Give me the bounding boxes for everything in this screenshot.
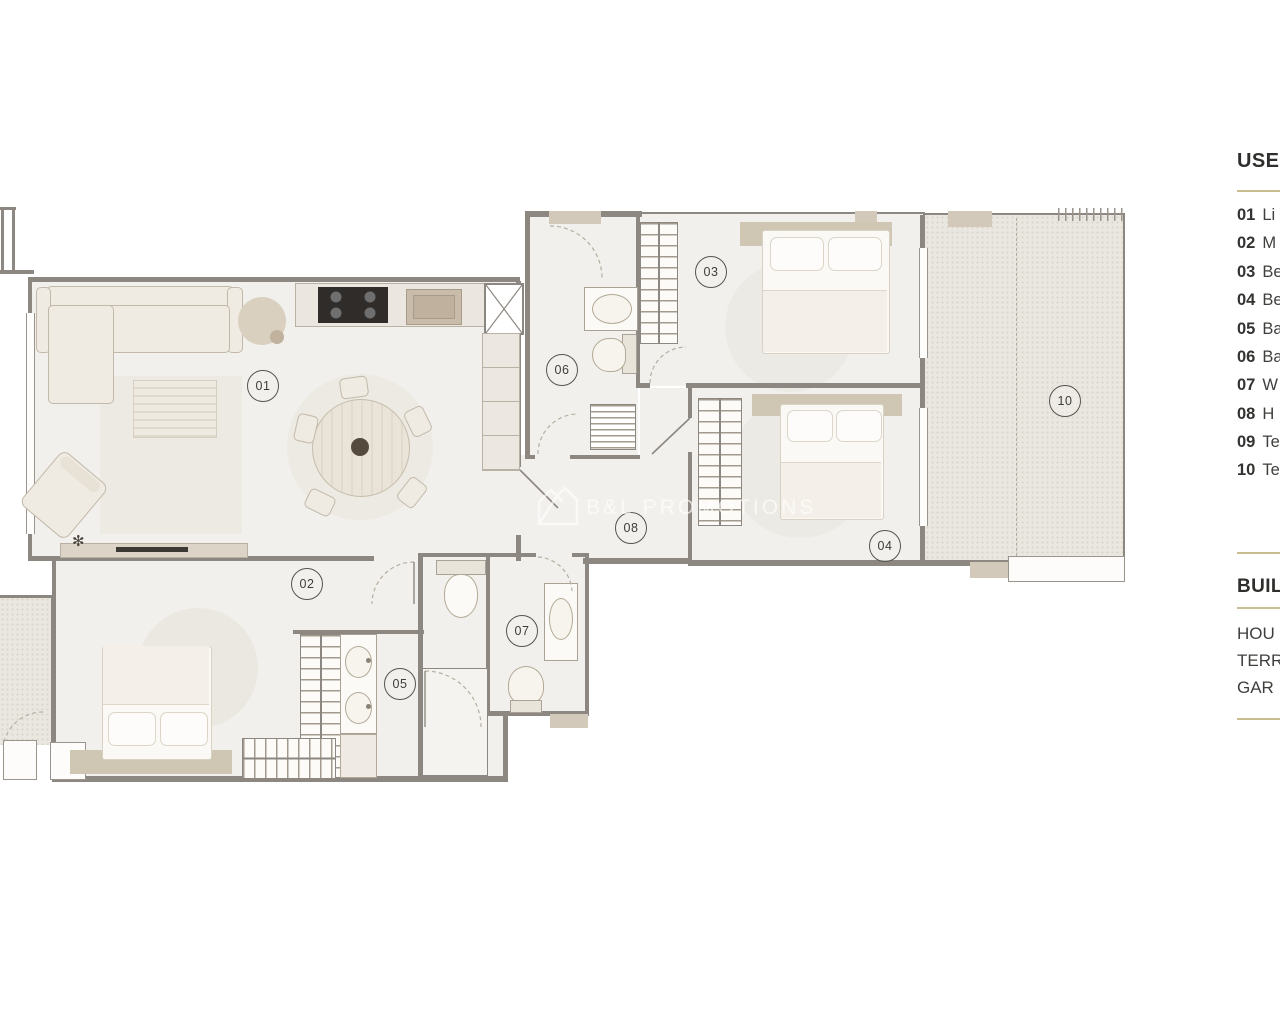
table-centerpiece (351, 438, 369, 456)
window-bay (3, 740, 37, 780)
legend-item: 08H (1237, 405, 1280, 424)
bath05-toilet-tank (436, 560, 486, 575)
legend-item-number: 08 (1237, 405, 1255, 423)
legend-item-label: Te (1262, 461, 1279, 479)
ventilation-shaft (484, 283, 524, 335)
legend-item: 09Te (1237, 433, 1280, 452)
floorplan-page: { "watermark": { "brand": "B&L PROMOTION… (0, 0, 1280, 1024)
legend-rule (1237, 190, 1280, 192)
room-label-01: 01 (247, 370, 279, 402)
wall-segment (525, 212, 530, 459)
door-arc-bath06 (536, 412, 580, 456)
room-label-text: 04 (878, 539, 893, 553)
wall-stub (0, 270, 34, 274)
window-bedroom04 (919, 408, 928, 526)
floor-plan: ✻ 01 02 03 04 0 (0, 0, 1280, 1024)
door-arc-bedroom02 (370, 560, 416, 606)
bath06-sink (592, 294, 632, 324)
legend-item-label: Be (1262, 263, 1280, 281)
legend-item: 07W (1237, 376, 1280, 395)
shower (422, 668, 488, 776)
bed02-pillow (160, 712, 208, 746)
bed03-blanket (763, 290, 887, 352)
legend-item-number: 09 (1237, 433, 1255, 451)
terrace-10-floor (925, 215, 1123, 560)
wall-segment (28, 281, 32, 313)
faucet-dot (366, 704, 371, 709)
railing-ticks (1058, 208, 1124, 221)
door-arc-entrance (548, 224, 604, 280)
wc07-sink (549, 598, 573, 640)
door-arc-bedroom03 (648, 345, 688, 385)
room-label-text: 05 (393, 677, 408, 691)
bath05-counter (340, 734, 377, 778)
legend-built-item: TERR (1237, 651, 1280, 671)
watermark: B&L PROMOTIONS (534, 482, 794, 528)
terrace-left-wall (51, 595, 54, 747)
legend-item-number: 04 (1237, 291, 1255, 309)
room-label-02: 02 (291, 568, 323, 600)
watermark-brand-text: B&L PROMOTIONS (586, 496, 816, 520)
wall-segment (570, 455, 640, 459)
threshold (550, 714, 588, 728)
wall-segment (28, 556, 56, 561)
dining-chair (339, 375, 370, 400)
door-leaf-bedroom04 (648, 414, 692, 458)
throw-blanket (133, 380, 217, 438)
legend-item: 04Be (1237, 291, 1280, 310)
entrance-door-slab (549, 211, 601, 224)
wall-segment (525, 455, 535, 459)
window-bedroom03 (919, 248, 928, 358)
legend-item: 05Ba (1237, 320, 1280, 339)
legend-built-label: GAR (1237, 678, 1274, 697)
bed03-pillow (828, 237, 882, 271)
bed04-pillow (787, 410, 833, 442)
legend-item: 03Be (1237, 263, 1280, 282)
wall-segment (28, 277, 520, 282)
terrace-divider-dashed (1016, 218, 1017, 556)
terrace-edge-right (1123, 213, 1125, 558)
wall-segment (686, 383, 925, 388)
legend-rule (1237, 607, 1280, 609)
room-label-03: 03 (695, 256, 727, 288)
bed03-pillow (770, 237, 824, 271)
room-label-06: 06 (546, 354, 578, 386)
room-label-text: 03 (704, 265, 719, 279)
legend-item: 06Ba (1237, 348, 1280, 367)
legend-useful-title: USEF (1237, 150, 1280, 173)
legend-item-label: Ba (1262, 348, 1280, 366)
wall-stub (1, 207, 4, 273)
kitchen-cabinets (482, 333, 520, 471)
room-label-10: 10 (1049, 385, 1081, 417)
legend-item-label: Ba (1262, 320, 1280, 338)
room-label-text: 10 (1058, 394, 1073, 408)
door-arc-terrace-left (2, 710, 46, 744)
bath05-toilet-bowl (444, 574, 478, 618)
legend-rule (1237, 552, 1280, 554)
bed04-pillow (836, 410, 882, 442)
wc07-toilet-tank (510, 700, 542, 713)
legend-item-number: 03 (1237, 263, 1255, 281)
legend-built-label: TERR (1237, 651, 1280, 670)
legend-item-number: 01 (1237, 206, 1255, 224)
towel-radiator (590, 404, 636, 450)
house-logo-icon (534, 482, 580, 526)
stove-hob (318, 287, 388, 323)
room-label-05: 05 (384, 668, 416, 700)
room-label-04: 04 (869, 530, 901, 562)
wall-segment (516, 535, 521, 561)
room-label-text: 07 (515, 624, 530, 638)
room-label-07: 07 (506, 615, 538, 647)
shaft-cross-icon (486, 285, 522, 333)
legend-built-item: HOU (1237, 624, 1280, 644)
wall-pier (948, 211, 992, 227)
room-label-text: 06 (555, 363, 570, 377)
wc07-toilet-bowl (508, 666, 544, 704)
legend-item-number: 07 (1237, 376, 1255, 394)
legend-item-label: Be (1262, 291, 1280, 309)
legend-item-label: W (1262, 376, 1278, 394)
legend-item-label: M (1262, 234, 1276, 252)
shower-door-arc (423, 669, 485, 731)
kitchen-sink (406, 289, 462, 325)
legend-item-label: Te (1262, 433, 1279, 451)
side-table-vase (270, 330, 284, 344)
legend-item-label: Li (1262, 206, 1275, 224)
door-arc-wc07 (536, 555, 574, 593)
bath06-toilet-bowl (592, 338, 626, 372)
legend-item-label: H (1262, 405, 1274, 423)
ac-unit (970, 562, 1008, 578)
sofa-chaise (48, 305, 114, 404)
terrace-left-wall (0, 595, 54, 598)
legend-item-number: 02 (1237, 234, 1255, 252)
wall-segment (688, 560, 1012, 566)
legend-built-label: HOU (1237, 624, 1275, 643)
bed02-blanket (103, 646, 209, 705)
legend-item: 02M (1237, 234, 1280, 253)
room-label-text: 01 (256, 379, 271, 393)
window-line-top (640, 212, 925, 214)
terrace-planter (1008, 556, 1125, 582)
legend-item-number: 05 (1237, 320, 1255, 338)
legend-rule (1237, 718, 1280, 720)
room-label-text: 02 (300, 577, 315, 591)
bed02-pillow (108, 712, 156, 746)
legend-item: 10Te (1237, 461, 1280, 480)
legend-item: 01Li (1237, 206, 1280, 225)
legend-built-title: BUIL (1237, 576, 1280, 598)
wall-stub (12, 207, 15, 273)
legend-built-item: GAR (1237, 678, 1280, 698)
wall-segment (585, 553, 589, 716)
plant-icon: ✻ (72, 532, 85, 550)
faucet-dot (366, 658, 371, 663)
wall-segment (503, 713, 508, 782)
legend-item-number: 10 (1237, 461, 1255, 479)
sink-basin (413, 295, 455, 319)
wall-segment (583, 558, 690, 564)
tv (116, 547, 188, 552)
legend-item-number: 06 (1237, 348, 1255, 366)
wardrobe-bedroom03 (640, 222, 678, 344)
wardrobe-bedroom02 (242, 738, 336, 779)
